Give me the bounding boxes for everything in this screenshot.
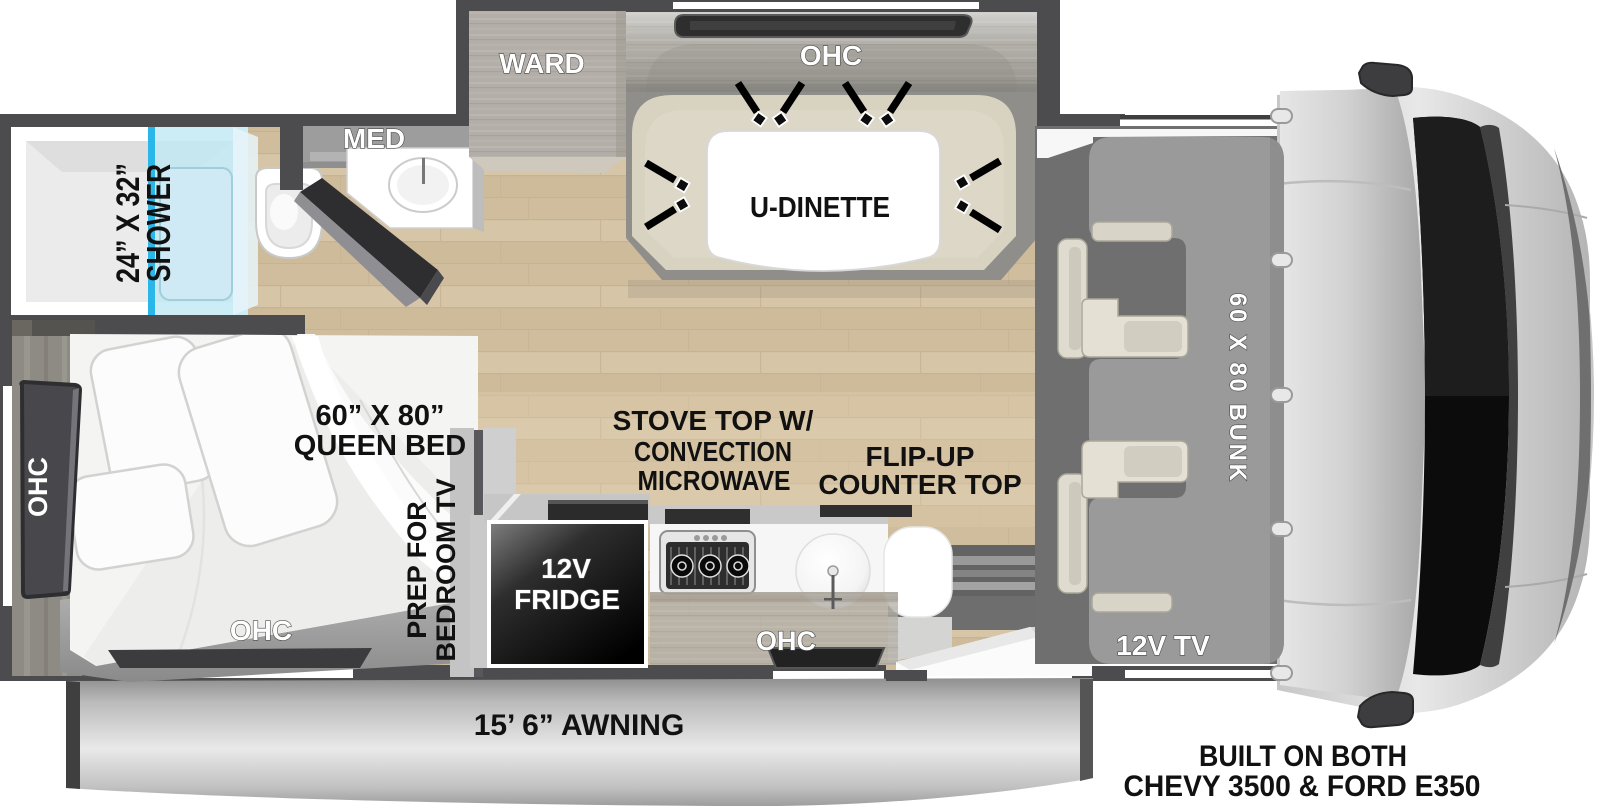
svg-text:MED: MED (343, 123, 405, 154)
svg-text:STOVE TOP W/: STOVE TOP W/ (613, 405, 814, 436)
svg-text:QUEEN BED: QUEEN BED (294, 430, 466, 462)
svg-text:OHC: OHC (23, 457, 53, 517)
svg-text:CHEVY 3500 & FORD E350: CHEVY 3500 & FORD E350 (1124, 770, 1481, 803)
svg-text:PREP FOR: PREP FOR (402, 501, 432, 639)
svg-text:15’ 6” AWNING: 15’ 6” AWNING (474, 709, 685, 742)
svg-text:MICROWAVE: MICROWAVE (638, 465, 791, 496)
svg-text:OHC: OHC (230, 615, 292, 646)
svg-text:BUILT ON BOTH: BUILT ON BOTH (1199, 740, 1407, 773)
svg-text:WARD: WARD (499, 48, 585, 79)
svg-text:FLIP-UP: FLIP-UP (866, 441, 975, 472)
svg-text:60 X 80 BUNK: 60 X 80 BUNK (1224, 293, 1251, 482)
svg-text:CONVECTION: CONVECTION (634, 436, 792, 467)
svg-text:12V: 12V (541, 553, 591, 584)
svg-text:U-DINETTE: U-DINETTE (750, 192, 890, 224)
svg-text:COUNTER TOP: COUNTER TOP (818, 469, 1021, 500)
svg-text:12V TV: 12V TV (1116, 630, 1210, 661)
svg-text:FRIDGE: FRIDGE (514, 584, 620, 615)
svg-text:OHC: OHC (800, 40, 862, 71)
svg-text:BEDROOM TV: BEDROOM TV (431, 478, 461, 661)
svg-text:OHC: OHC (756, 626, 816, 656)
svg-text:60” X 80”: 60” X 80” (316, 400, 445, 432)
svg-text:SHOWER: SHOWER (140, 164, 177, 282)
